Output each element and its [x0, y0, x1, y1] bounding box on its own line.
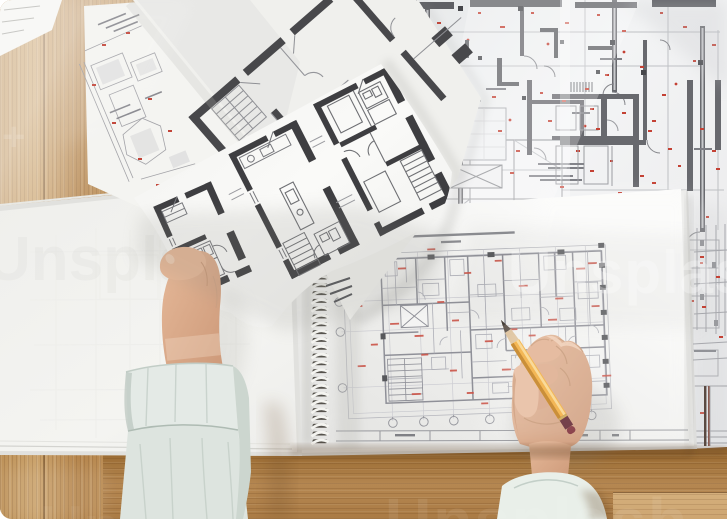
- svg-text:Unsplash: Unsplash: [385, 485, 689, 519]
- svg-text:Un: Un: [40, 494, 120, 519]
- svg-text:Unsplash: Unsplash: [508, 239, 727, 306]
- svg-text:+: +: [2, 115, 25, 159]
